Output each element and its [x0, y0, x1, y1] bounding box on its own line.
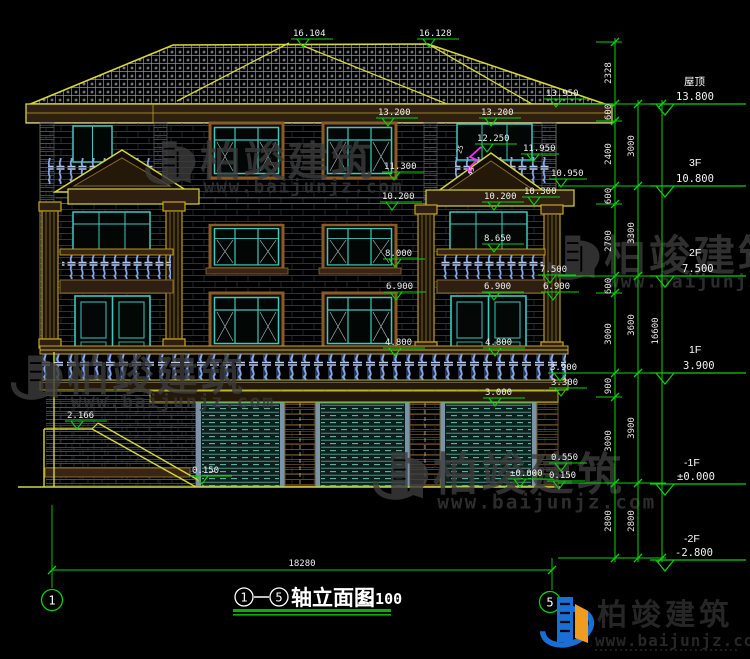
svg-text:-2F: -2F: [684, 533, 700, 545]
window-2f-rightwing: [450, 212, 527, 252]
floor-marker-3f: 3F 10.800: [650, 157, 746, 197]
svg-text:2F: 2F: [689, 247, 701, 259]
svg-text:1: 1: [48, 594, 55, 608]
dim-label: 2800: [604, 510, 614, 532]
svg-text:6.900: 6.900: [543, 282, 570, 292]
svg-text:3.900: 3.900: [550, 363, 577, 373]
door-1f-left: [75, 296, 150, 353]
dim-label: 2700: [604, 230, 614, 252]
svg-text:8.650: 8.650: [484, 234, 511, 244]
window-2f-right: [323, 225, 396, 268]
svg-text:0.150: 0.150: [549, 471, 576, 481]
svg-text:4.800: 4.800: [485, 338, 512, 348]
dim-label: 16600: [651, 317, 661, 344]
column: [39, 202, 61, 348]
svg-text:10.800: 10.800: [676, 173, 714, 185]
svg-text:7.500: 7.500: [540, 265, 567, 275]
svg-text:3.000: 3.000: [485, 388, 512, 398]
svg-text:1F: 1F: [689, 344, 701, 356]
window-1f-left: [210, 293, 283, 348]
axis-bubble-1: 1: [42, 590, 63, 611]
svg-text:0.550: 0.550: [551, 453, 578, 463]
floor-marker-1f: 1F 3.900: [650, 344, 746, 384]
svg-text:0.150: 0.150: [192, 466, 219, 476]
floor-marker-roof: 屋顶 13.800: [650, 76, 746, 115]
balustrade-2f-left: [62, 255, 171, 279]
dim-label: 600: [604, 188, 614, 204]
brand-logo: 柏竣建筑 www.baijunjz.com: [538, 597, 750, 651]
title-scale: 1:100: [357, 590, 402, 608]
svg-text:-1F: -1F: [684, 457, 700, 469]
svg-text:10.300: 10.300: [524, 187, 557, 197]
floor-level-markers: 屋顶 13.800 3F 10.800 2F 7.500 1F 3.900 -1…: [650, 76, 746, 571]
svg-text:16.128: 16.128: [419, 29, 452, 39]
svg-text:2.166: 2.166: [67, 411, 94, 421]
svg-text:16.104: 16.104: [293, 29, 326, 39]
svg-text:11.950: 11.950: [523, 144, 556, 154]
dim-label: 600: [604, 104, 614, 120]
dim-label: 3600: [627, 314, 637, 336]
svg-text:4.800: 4.800: [385, 338, 412, 348]
svg-text:12.250: 12.250: [477, 134, 510, 144]
title-axis-from: 1: [240, 591, 247, 605]
svg-text:13.800: 13.800: [676, 91, 714, 103]
dim-label: 3000: [627, 135, 637, 157]
title-axis-to: 5: [275, 591, 282, 605]
cad-elevation-screenshot: 柏竣建筑 www.baijunjz.com: [0, 0, 750, 659]
hip-roof: [28, 44, 608, 105]
svg-text:11.300: 11.300: [384, 162, 417, 172]
dim-label: 600: [604, 278, 614, 294]
svg-text:13.200: 13.200: [481, 108, 514, 118]
svg-text:13.200: 13.200: [378, 108, 411, 118]
svg-text:7.500: 7.500: [682, 263, 714, 275]
dim-label: 2328: [604, 62, 614, 84]
building: [18, 43, 612, 487]
drawing-title: 1 5 轴立面图 1:100: [233, 586, 402, 616]
svg-text:10.950: 10.950: [551, 169, 584, 179]
brand-name: 柏竣建筑: [597, 598, 733, 632]
dim-label: 3300: [627, 222, 637, 244]
floor-marker-b1f: -1F ±0.000: [650, 457, 746, 495]
svg-text:±0.000: ±0.000: [510, 469, 543, 479]
svg-text:-2.800: -2.800: [675, 547, 713, 559]
svg-text:5: 5: [546, 596, 553, 610]
total-width-dim: 18280: [288, 559, 315, 569]
svg-text:10.200: 10.200: [484, 192, 517, 202]
dim-label: 2400: [604, 143, 614, 165]
floor-marker-b2f: -2F -2.800: [650, 533, 746, 571]
dim-label: 3000: [604, 323, 614, 345]
dim-label: 3000: [604, 430, 614, 452]
dim-label: 2800: [627, 510, 637, 532]
elevation-drawing: 柏竣建筑 www.baijunjz.com: [0, 0, 750, 659]
balustrade-2f-right: [439, 255, 543, 279]
svg-text:3F: 3F: [689, 157, 701, 169]
brand-url: www.baijunjz.com: [595, 631, 750, 650]
svg-text:6.900: 6.900: [484, 282, 511, 292]
eave-band: [26, 104, 612, 123]
svg-text:屋顶: 屋顶: [684, 76, 705, 88]
dim-label: 3900: [627, 417, 637, 439]
svg-text:8.000: 8.000: [385, 249, 412, 259]
svg-text:10.200: 10.200: [382, 192, 415, 202]
column: [415, 205, 437, 351]
window-2f-left: [210, 225, 283, 268]
dim-label: 900: [604, 378, 614, 394]
svg-text:6.900: 6.900: [386, 282, 413, 292]
svg-text:3.900: 3.900: [683, 360, 715, 372]
svg-text:3.300: 3.300: [551, 378, 578, 388]
svg-text:13.950: 13.950: [546, 89, 579, 99]
window-2f-leftwing: [73, 212, 150, 252]
svg-text:±0.000: ±0.000: [677, 471, 715, 483]
